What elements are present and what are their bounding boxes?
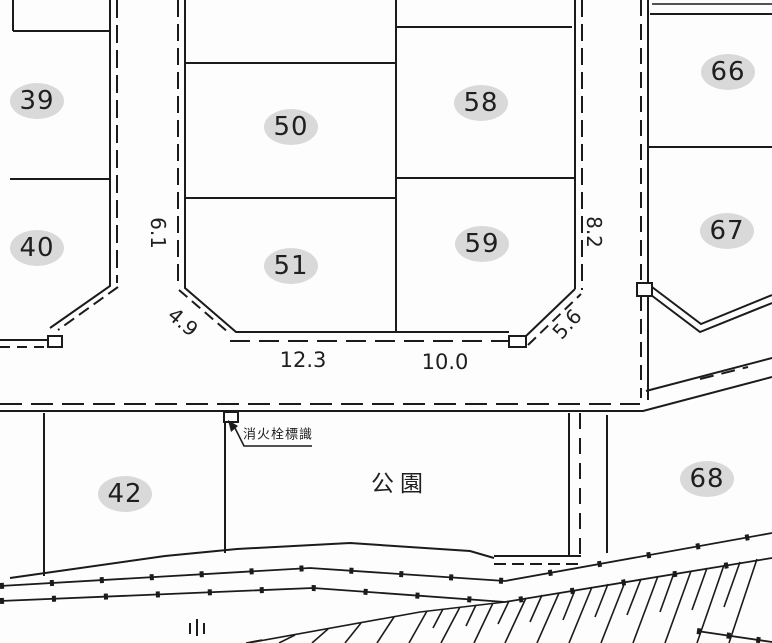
park-label: 公園: [371, 464, 429, 498]
label-layer: 394050515859666742686.18.24.95.612.310.0…: [0, 0, 772, 643]
parcel-label-40: 40: [10, 230, 64, 266]
dimension-label-4.9: 4.9: [163, 303, 203, 342]
parcel-label-59: 59: [455, 226, 509, 262]
dimension-label-6.1: 6.1: [146, 217, 170, 249]
parcel-label-68: 68: [680, 461, 734, 497]
parcel-label-67: 67: [700, 213, 754, 249]
parcel-label-42: 42: [98, 476, 152, 512]
parcel-label-50: 50: [264, 109, 318, 145]
parcel-label-39: 39: [10, 83, 64, 119]
parcel-label-58: 58: [454, 85, 508, 121]
cadastral-map: 394050515859666742686.18.24.95.612.310.0…: [0, 0, 772, 643]
dimension-label-10.0: 10.0: [422, 350, 469, 374]
dimension-label-12.3: 12.3: [280, 348, 327, 372]
fire-hydrant-sign-label: 消火栓標識: [243, 424, 313, 443]
dimension-label-8.2: 8.2: [582, 216, 606, 248]
parcel-label-66: 66: [701, 54, 755, 90]
parcel-label-51: 51: [264, 248, 318, 284]
dimension-label-5.6: 5.6: [547, 304, 586, 344]
